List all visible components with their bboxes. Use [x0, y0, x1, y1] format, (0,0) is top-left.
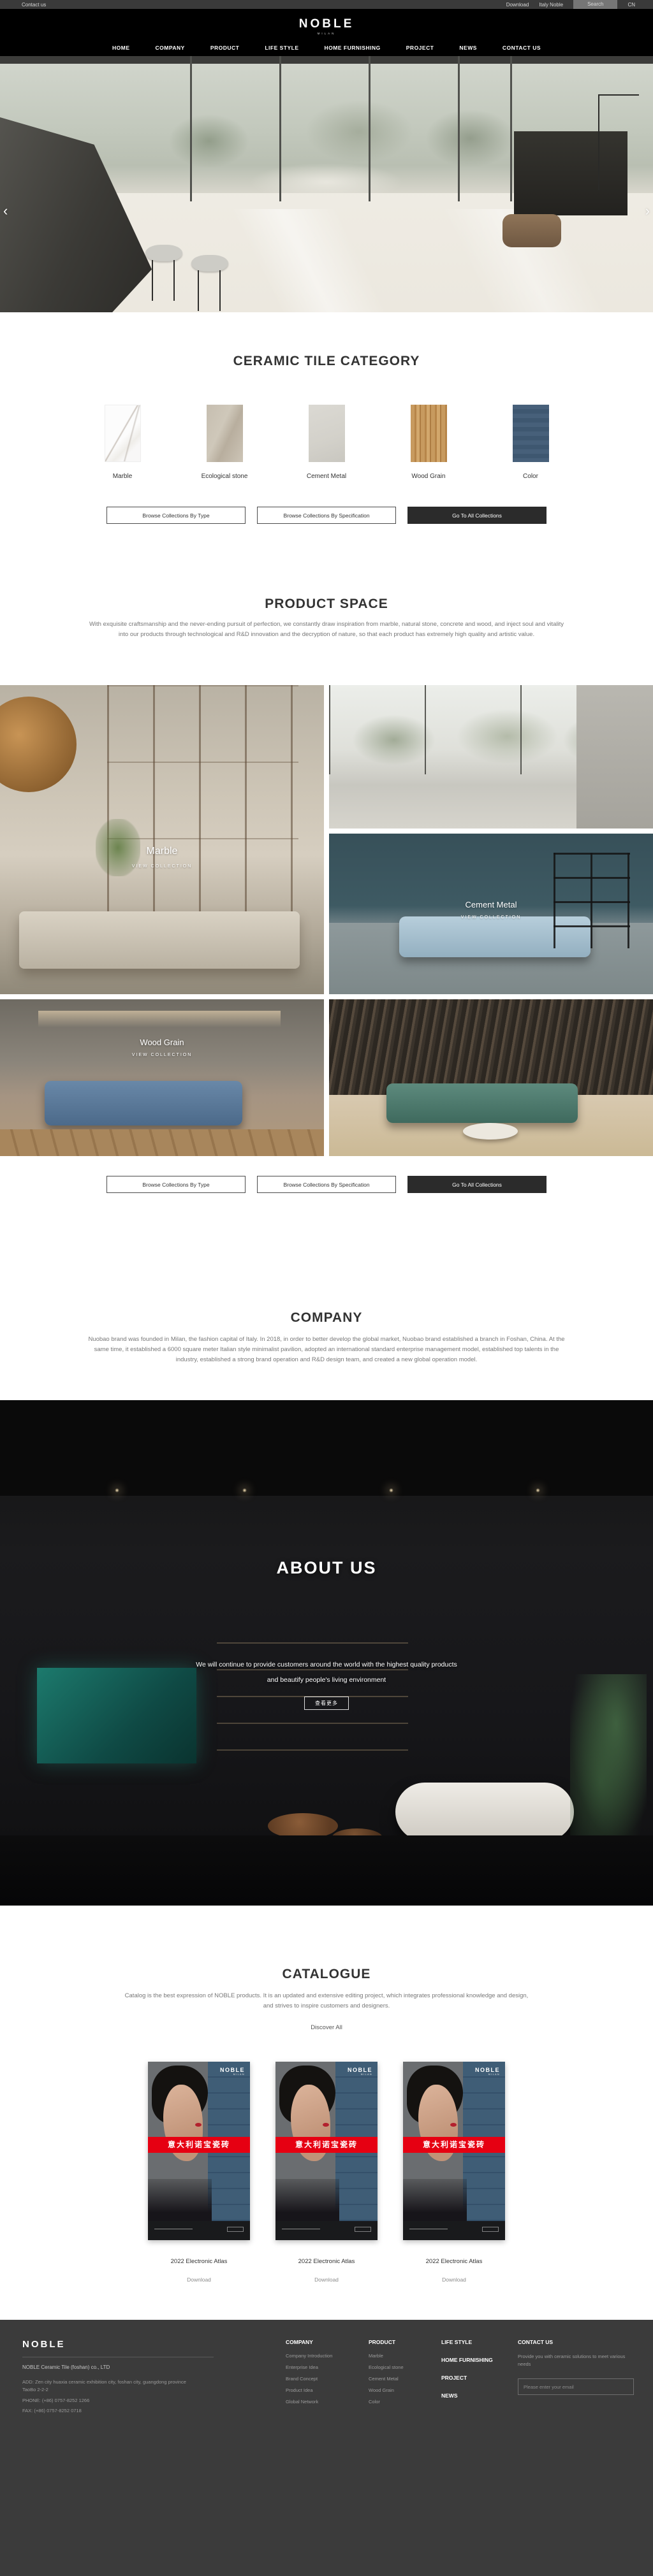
cover-brand-sub: MILAN: [348, 2073, 372, 2076]
go-to-all-collections-button[interactable]: Go To All Collections: [407, 507, 547, 524]
space-tile-bright-room[interactable]: [329, 685, 653, 829]
cover-footer-strip: [148, 2221, 250, 2240]
main-nav: HOME COMPANY PRODUCT LIFE STYLE HOME FUR…: [0, 40, 653, 56]
footer-col-product: PRODUCT Marble Ecological stone Cement M…: [369, 2339, 404, 2410]
ecological-stone-swatch: [207, 405, 243, 462]
category-item-ecological-stone[interactable]: Ecological stone: [173, 405, 275, 480]
sofa-shape: [19, 911, 300, 969]
cover-brand-sub: MILAN: [475, 2073, 500, 2076]
download-link[interactable]: Download: [275, 2276, 378, 2283]
dark-floor: [0, 1835, 653, 1906]
download-link[interactable]: Download: [148, 2276, 250, 2283]
carousel-prev-icon[interactable]: ‹: [3, 204, 8, 218]
catalogue-paragraph: Catalog is the best expression of NOBLE …: [122, 1991, 531, 2011]
category-label: Color: [523, 473, 538, 480]
ceiling-glow: [38, 1011, 281, 1027]
window-mullion: [510, 56, 512, 201]
category-item-color[interactable]: Color: [480, 405, 582, 480]
catalogue-title: CATALOGUE: [0, 1967, 653, 1982]
footer-company-header[interactable]: COMPANY: [286, 2339, 332, 2345]
category-item-cement-metal[interactable]: Cement Metal: [275, 405, 378, 480]
discover-all-link[interactable]: Discover All: [0, 2024, 653, 2031]
footer-link[interactable]: Color: [369, 2399, 404, 2405]
spotlight: [242, 1488, 247, 1493]
space-tile-marble[interactable]: Marble VIEW COLLECTION: [0, 685, 324, 994]
product-space-title: PRODUCT SPACE: [0, 597, 653, 612]
cover-footer-strip: [403, 2221, 505, 2240]
decor-disc: [0, 697, 77, 792]
footer-link[interactable]: Company Introduction: [286, 2353, 332, 2359]
about-line-1: We will continue to provide customers ar…: [0, 1661, 653, 1668]
view-collection-link[interactable]: VIEW COLLECTION: [329, 915, 653, 920]
category-item-marble[interactable]: Marble: [71, 405, 173, 480]
cover-brand: NOBLE: [475, 2067, 500, 2073]
download-link[interactable]: Download: [403, 2276, 505, 2283]
nav-contact-us[interactable]: CONTACT US: [503, 45, 541, 51]
browse-by-type-button[interactable]: Browse Collections By Type: [106, 1176, 246, 1193]
nav-home-furnishing[interactable]: HOME FURNISHING: [325, 45, 381, 51]
product-space-buttons: Browse Collections By Type Browse Collec…: [0, 1176, 653, 1193]
logo-subtitle: MILAN: [0, 32, 653, 35]
nav-product[interactable]: PRODUCT: [210, 45, 240, 51]
footer-link[interactable]: Brand Concept: [286, 2376, 332, 2382]
round-table: [268, 1813, 338, 1839]
window-mullion: [458, 56, 460, 201]
about-more-button[interactable]: 查看更多: [304, 1697, 349, 1710]
about-line-2: and beautify people's living environment: [0, 1676, 653, 1684]
logo[interactable]: NOBLE: [0, 9, 653, 31]
footer-fax: FAX: (+86) 0757-8252 0718: [22, 2408, 82, 2413]
overlay-marble-label: Marble: [0, 846, 324, 857]
atlas-download-row: Download Download Download: [0, 2276, 653, 2283]
spotlight: [115, 1488, 119, 1493]
category-label: Marble: [113, 473, 133, 480]
catalogue-cover-1[interactable]: NOBLE MILAN 意大利诺宝瓷砖: [148, 2062, 250, 2240]
cover-brand-sub: MILAN: [220, 2073, 245, 2076]
nav-news[interactable]: NEWS: [459, 45, 477, 51]
wood-grain-swatch: [411, 405, 447, 462]
cover-brand: NOBLE: [220, 2067, 245, 2073]
color-swatch: [513, 405, 549, 462]
footer-address: ADD: Zen city huaxia ceramic exhibition …: [22, 2378, 194, 2394]
atlas-labels-row: 2022 Electronic Atlas 2022 Electronic At…: [0, 2258, 653, 2265]
product-space-paragraph: With exquisite craftsmanship and the nev…: [84, 619, 569, 640]
footer-company-name: NOBLE Ceramic Tile (foshan) co., LTD: [22, 2364, 110, 2370]
site-header: NOBLE MILAN: [0, 9, 653, 40]
footer-col-links: LIFE STYLE HOME FURNISHING PROJECT NEWS: [441, 2339, 493, 2410]
download-link[interactable]: Download: [506, 2, 529, 8]
browse-by-type-button[interactable]: Browse Collections By Type: [106, 507, 246, 524]
cover-brand: NOBLE: [348, 2067, 372, 2073]
about-more-wrap: 查看更多: [0, 1697, 653, 1710]
browse-by-specification-button[interactable]: Browse Collections By Specification: [257, 1176, 396, 1193]
go-to-all-collections-button[interactable]: Go To All Collections: [407, 1176, 547, 1193]
catalogue-covers: NOBLE MILAN 意大利诺宝瓷砖 NOBLE MILAN 意大利诺宝瓷砖 …: [0, 2062, 653, 2240]
footer-link[interactable]: Global Network: [286, 2399, 332, 2405]
bar-stool: [191, 255, 228, 271]
white-sofa: [395, 1783, 574, 1841]
sofa-shape: [386, 1083, 578, 1123]
hero-clothes-rack: [598, 94, 639, 190]
bar-stool: [145, 245, 182, 261]
footer-news-link[interactable]: NEWS: [441, 2392, 493, 2399]
window-mullion: [369, 56, 371, 201]
footer-project-link[interactable]: PROJECT: [441, 2375, 493, 2381]
footer-col-company: COMPANY Company Introduction Enterprise …: [286, 2339, 332, 2410]
language-toggle[interactable]: CN: [627, 2, 635, 8]
footer-phone: PHONE: (+86) 0757-8252 1266: [22, 2398, 89, 2403]
about-us-title: ABOUT US: [0, 1558, 653, 1578]
model-lips: [450, 2123, 457, 2127]
footer-contact-text: Provide you with ceramic solutions to me…: [518, 2353, 639, 2368]
hero-pouf: [503, 214, 561, 247]
hero-carousel: ‹ ›: [0, 56, 653, 312]
footer-link[interactable]: Marble: [369, 2353, 404, 2359]
footer-logo[interactable]: NOBLE: [22, 2339, 66, 2350]
footer-life-style-link[interactable]: LIFE STYLE: [441, 2339, 493, 2345]
footer-link[interactable]: Cement Metal: [369, 2376, 404, 2382]
footer: NOBLE NOBLE Ceramic Tile (foshan) co., L…: [0, 2320, 653, 2576]
wood-floor: [0, 1129, 324, 1156]
category-label: Wood Grain: [411, 473, 445, 480]
footer-link[interactable]: Wood Grain: [369, 2387, 404, 2393]
view-collection-link[interactable]: VIEW COLLECTION: [0, 864, 324, 869]
footer-home-furnishing-link[interactable]: HOME FURNISHING: [441, 2357, 493, 2363]
footer-contact-col: CONTACT US Provide you with ceramic solu…: [518, 2339, 639, 2395]
email-subscribe-input[interactable]: [518, 2378, 634, 2395]
spotlight: [536, 1488, 540, 1493]
overlay-cement-label: Cement Metal: [329, 900, 653, 909]
wood-slat-wall: [329, 999, 653, 1095]
page: Contact us Download Italy Noble Search C…: [0, 0, 653, 2576]
category-item-wood-grain[interactable]: Wood Grain: [378, 405, 480, 480]
footer-link[interactable]: Ecological stone: [369, 2364, 404, 2370]
catalogue-cover-2[interactable]: NOBLE MILAN 意大利诺宝瓷砖: [275, 2062, 378, 2240]
about-us-banner: [0, 1400, 653, 1906]
cover-red-band: 意大利诺宝瓷砖: [148, 2137, 250, 2153]
category-label: Ecological stone: [202, 473, 248, 480]
cover-red-band: 意大利诺宝瓷砖: [403, 2137, 505, 2153]
italy-noble-link[interactable]: Italy Noble: [539, 2, 563, 8]
company-paragraph: Nuobao brand was founded in Milan, the f…: [84, 1335, 569, 1365]
footer-product-header[interactable]: PRODUCT: [369, 2339, 404, 2345]
hero-ceiling-beam: [0, 56, 653, 64]
atlas-label: 2022 Electronic Atlas: [275, 2258, 378, 2265]
category-section-title: CERAMIC TILE CATEGORY: [0, 354, 653, 369]
nav-life-style[interactable]: LIFE STYLE: [265, 45, 298, 51]
window-mullion: [190, 56, 192, 201]
footer-link[interactable]: Product Idea: [286, 2387, 332, 2393]
view-collection-link[interactable]: VIEW COLLECTION: [0, 1053, 324, 1057]
footer-divider: [22, 2357, 214, 2357]
gray-wall: [576, 685, 653, 829]
cement-metal-swatch: [309, 405, 345, 462]
window-mullion: [279, 56, 281, 201]
atlas-label: 2022 Electronic Atlas: [148, 2258, 250, 2265]
carousel-next-icon[interactable]: ›: [645, 204, 650, 218]
browse-by-specification-button[interactable]: Browse Collections By Specification: [257, 507, 396, 524]
model-lips: [323, 2123, 329, 2127]
nav-home[interactable]: HOME: [112, 45, 130, 51]
sofa-shape: [45, 1081, 242, 1125]
company-title: COMPANY: [0, 1310, 653, 1326]
model-lips: [195, 2123, 202, 2127]
top-utility-bar: Contact us Download Italy Noble Search C…: [0, 0, 653, 9]
space-tile-wood-grain[interactable]: Wood Grain VIEW COLLECTION: [0, 999, 324, 1156]
catalogue-cover-3[interactable]: NOBLE MILAN 意大利诺宝瓷砖: [403, 2062, 505, 2240]
atlas-label: 2022 Electronic Atlas: [403, 2258, 505, 2265]
marble-swatch: [105, 405, 141, 462]
cover-red-band: 意大利诺宝瓷砖: [275, 2137, 378, 2153]
nav-project[interactable]: PROJECT: [406, 45, 434, 51]
search-button[interactable]: Search: [573, 0, 617, 9]
category-label: Cement Metal: [307, 473, 346, 480]
spotlight: [389, 1488, 393, 1493]
category-row: Marble Ecological stone Cement Metal Woo…: [0, 405, 653, 480]
coffee-table: [463, 1123, 518, 1140]
overlay-wood-label: Wood Grain: [0, 1038, 324, 1047]
contact-us-link[interactable]: Contact us: [22, 2, 46, 8]
dark-ceiling: [0, 1400, 653, 1496]
footer-link[interactable]: Enterprise Idea: [286, 2364, 332, 2370]
nav-company[interactable]: COMPANY: [155, 45, 184, 51]
space-tile-green-sofa[interactable]: [329, 999, 653, 1156]
cover-footer-strip: [275, 2221, 378, 2240]
footer-contact-header[interactable]: CONTACT US: [518, 2339, 639, 2345]
space-tile-cement-metal[interactable]: Cement Metal VIEW COLLECTION: [329, 834, 653, 994]
category-buttons: Browse Collections By Type Browse Collec…: [0, 507, 653, 524]
